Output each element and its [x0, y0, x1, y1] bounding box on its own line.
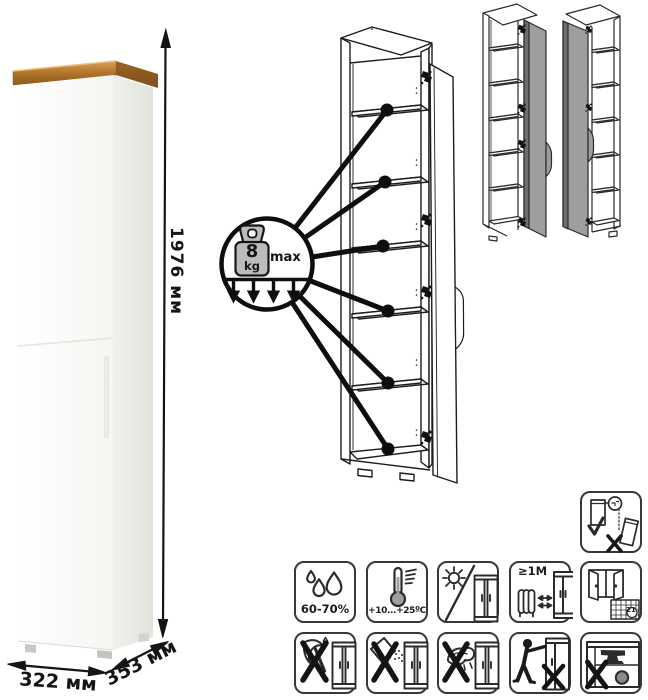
- no-wet-cleaning-icon: [437, 632, 499, 694]
- humidity-range-label: 60-70%: [296, 604, 354, 616]
- person-icon: [514, 639, 545, 683]
- shelf-pointer-dots: [377, 104, 395, 456]
- heat-source-distance-icon: ≥1М: [509, 561, 571, 623]
- kettlebell-icon: [616, 671, 628, 683]
- load-limit-unit: kg: [236, 261, 268, 273]
- door-handle-profile: [455, 287, 464, 349]
- ventilation-icon: 21: [580, 561, 642, 623]
- door-variant-drawings: [470, 0, 648, 245]
- no-sharp-tools-icon: [294, 632, 356, 694]
- door-handle: [546, 142, 552, 177]
- cabinet-foot: [25, 644, 36, 653]
- distance-arrows: [539, 596, 552, 608]
- calendar-day-label: 21: [626, 607, 636, 614]
- cabinet-glyph: [554, 572, 573, 618]
- secure-to-wall-icon: [580, 491, 642, 553]
- cabinet-foot: [97, 650, 112, 659]
- height-dimension-label: 1976 мм: [167, 227, 184, 347]
- open-door: [430, 64, 457, 483]
- carcass-top-face: [341, 27, 432, 55]
- radiator-icon: [519, 590, 535, 617]
- sun-icon: [443, 567, 465, 589]
- distance-label: ≥1М: [518, 566, 547, 578]
- load-limit-max-label: max: [270, 251, 304, 264]
- cabinet-foot: [139, 633, 149, 642]
- door-handle-groove: [105, 356, 109, 438]
- cabinet-front: [18, 75, 113, 650]
- variant-door-right: [483, 4, 552, 241]
- open-window-icon: [589, 570, 623, 600]
- temperature-range-icon: +10...+25ºC: [366, 561, 428, 623]
- product-photo-and-dimensions: [0, 0, 200, 700]
- temperature-range-label: +10...+25ºC: [368, 607, 426, 616]
- cabinet-side: [113, 75, 153, 650]
- no-direct-sunlight-icon: [437, 561, 499, 623]
- no-abrasive-cleaners-icon: [366, 632, 428, 694]
- humidity-icon: 60-70%: [294, 561, 356, 623]
- no-overloading-icon: [580, 632, 642, 694]
- product-sheet: 1976 мм 322 мм 353 мм: [0, 0, 648, 700]
- no-dragging-icon: [509, 632, 571, 694]
- x-mark: [608, 536, 621, 551]
- variant-door-left: [563, 5, 621, 237]
